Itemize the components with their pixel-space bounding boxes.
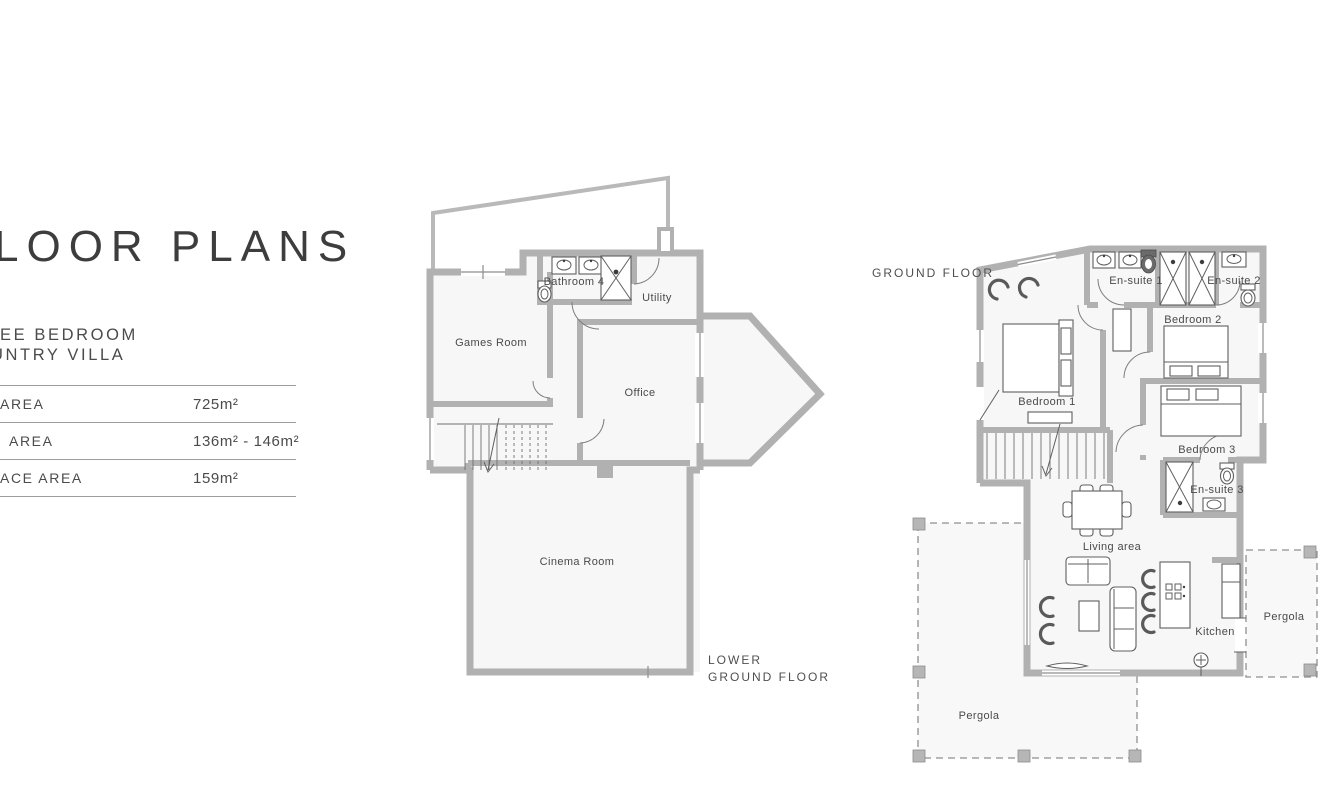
room-label-ensuite2: En-suite 2 [1207, 275, 1261, 287]
caption-lower-ground-floor: LOWER [708, 653, 762, 667]
room-label-bathroom4: Bathroom 4 [544, 276, 605, 288]
room-label-office: Office [625, 387, 656, 399]
bedroom2-furniture [1164, 326, 1228, 378]
wardrobe [1113, 309, 1131, 351]
room-label-ensuite1: En-suite 1 [1109, 275, 1163, 287]
room-label-pergola-bottom: Pergola [959, 710, 1000, 722]
lower-ground-floor-plan: Bathroom 4 Utility Games Room Office Cin… [425, 178, 830, 684]
ground-floor-plan: GROUND FLOOR En-suite 1 En-suite 2 Bedro… [872, 249, 1317, 762]
room-label-utility: Utility [642, 292, 672, 304]
bed [1003, 324, 1059, 392]
room-label-bedroom2: Bedroom 2 [1164, 314, 1221, 326]
room-label-pergola-right: Pergola [1264, 611, 1305, 623]
room-label-bedroom1: Bedroom 1 [1018, 396, 1075, 408]
floor-plans-drawing: Bathroom 4 Utility Games Room Office Cin… [0, 0, 1320, 800]
dining-set [1063, 485, 1131, 536]
bedroom3-furniture [1161, 386, 1241, 436]
room-label-bedroom3: Bedroom 3 [1178, 444, 1235, 456]
wall-pier [597, 463, 613, 478]
room-label-games-room: Games Room [455, 337, 527, 349]
dresser [1028, 412, 1072, 423]
room-label-kitchen: Kitchen [1195, 626, 1235, 638]
fridge-counter [1222, 564, 1240, 618]
room-label-ensuite3: En-suite 3 [1190, 484, 1244, 496]
room-label-cinema-room: Cinema Room [540, 556, 615, 568]
flue [659, 229, 672, 253]
dining-table [1072, 491, 1122, 529]
coffee-table [1079, 601, 1099, 631]
room-label-living-area: Living area [1083, 541, 1142, 553]
caption-ground-floor: GROUND FLOOR [872, 266, 994, 280]
floor-plan-sheet: LOOR PLANS EE BEDROOM UNTRY VILLA AREA 7… [0, 0, 1320, 800]
caption-lower-ground-floor: GROUND FLOOR [708, 670, 830, 684]
